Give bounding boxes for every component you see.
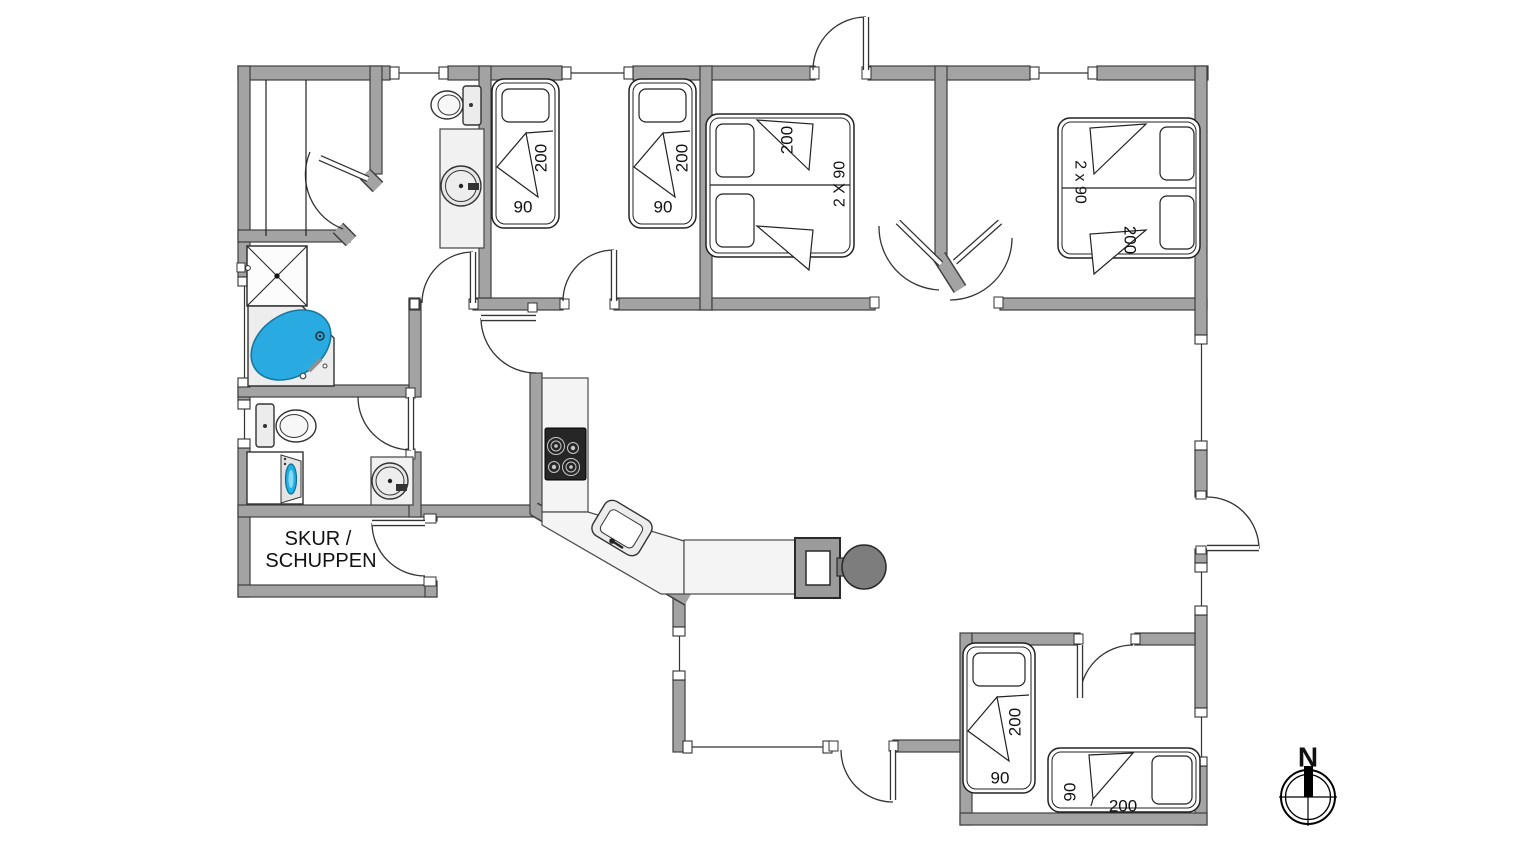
washing-machine <box>247 452 303 504</box>
kitchen-counter-horizontal <box>684 540 795 594</box>
window-cap <box>1195 563 1207 572</box>
label-bed2-width: 90 <box>654 198 673 217</box>
door-jamb <box>994 297 1003 308</box>
door-jamb <box>889 741 898 751</box>
washing-machine-part <box>289 470 294 488</box>
cooktop-part <box>569 465 573 469</box>
door-jamb <box>410 299 419 309</box>
wall-north-a <box>238 66 390 80</box>
wall-north-c <box>633 66 815 80</box>
wood-stove-part <box>806 551 830 585</box>
label-bed3-length: 200 <box>778 126 797 154</box>
shower-part <box>246 266 251 271</box>
window-cap <box>1195 708 1207 717</box>
window-cap <box>673 671 685 680</box>
wall-north-d <box>868 66 1030 80</box>
door-jamb <box>528 303 537 312</box>
corner-bathtub-part <box>319 335 322 338</box>
shower <box>237 246 307 306</box>
window-north-2 <box>562 67 633 79</box>
wall-brbed-south <box>960 813 1207 825</box>
window-north-3 <box>1030 67 1097 79</box>
cooktop-part <box>571 446 575 450</box>
wall-bed3-south <box>712 298 875 310</box>
door-jamb <box>406 388 415 398</box>
window-cap <box>238 400 250 409</box>
window-cap <box>673 627 685 636</box>
door-jamb <box>560 299 569 309</box>
door-jamb <box>870 297 879 308</box>
label-bed3-width: 2 X 90 <box>832 161 849 207</box>
shower-part <box>237 263 245 272</box>
bed-double-room3-part <box>716 124 754 177</box>
washing-machine-part <box>284 458 286 460</box>
window-east-living-1 <box>1195 335 1207 450</box>
bed-double-room4-part <box>1160 196 1194 249</box>
label-bed4-width: 2 x 90 <box>1072 160 1089 204</box>
window-cap <box>1195 606 1207 615</box>
wood-stove-part <box>842 545 886 589</box>
floorplan-canvas: 20090200902002 X 902 x 902002009090200SK… <box>0 0 1536 864</box>
door-jamb <box>1074 634 1083 644</box>
window-cap <box>1195 441 1207 450</box>
vanity-laundry-part <box>388 479 392 483</box>
window-cap <box>562 67 571 79</box>
label-shed-label-line1: SKUR / <box>285 528 352 550</box>
wall-north-b <box>448 66 562 80</box>
window-cap <box>390 67 399 79</box>
wall-east-d <box>1195 615 1207 708</box>
wall-shed-south <box>238 585 437 597</box>
label-bed1-length: 200 <box>532 144 551 172</box>
wall-laundry-north <box>238 385 409 397</box>
window-cap <box>238 439 250 448</box>
cooktop-part <box>554 444 558 448</box>
bed-double-room3-part <box>716 194 754 247</box>
toilet-wc-part <box>469 103 473 107</box>
label-compass-north: N <box>1298 742 1318 773</box>
window-west-laundry <box>238 400 250 448</box>
label-bed5-length: 200 <box>1006 708 1025 736</box>
wall-bath-north <box>238 230 350 242</box>
toilet-laundry-part <box>263 424 267 428</box>
wall-south-living <box>893 740 960 752</box>
door-jamb <box>1196 491 1206 499</box>
window-cap <box>1030 67 1039 79</box>
bed-single-2-part <box>639 89 686 122</box>
floorplan-page: 20090200902002 X 902 x 902002009090200SK… <box>0 0 1536 864</box>
washing-machine-part <box>284 463 286 465</box>
door-jamb <box>1131 634 1140 644</box>
shower-part <box>274 273 279 278</box>
wall-bed3-bed4 <box>935 66 947 258</box>
window-east-living-2 <box>1195 563 1207 615</box>
vanity-wc <box>440 129 484 248</box>
bed-single-br-vertical-part <box>973 653 1025 686</box>
vanity-laundry-part <box>396 484 407 491</box>
wall-hall-west-a <box>409 300 421 397</box>
wall-east-b <box>1195 450 1207 497</box>
corner-bathtub-part <box>323 364 327 368</box>
toilet-laundry-part <box>280 415 308 438</box>
door-jamb <box>810 67 819 79</box>
label-shed-label-line2: SCHUPPEN <box>265 550 376 572</box>
window-south-living <box>683 741 832 753</box>
door-jamb <box>424 577 436 586</box>
wall-brbed-north-b <box>1135 633 1195 645</box>
window-cap <box>683 741 692 753</box>
door-jamb <box>424 514 436 523</box>
cooktop <box>545 428 586 480</box>
wall-rooms-south-b <box>473 298 563 310</box>
window-cap <box>439 67 448 79</box>
wall-bed4-south <box>1000 298 1207 310</box>
wall-north-e <box>1097 66 1208 80</box>
label-bed1-width: 90 <box>514 198 533 217</box>
wall-kitchen-west <box>530 373 542 514</box>
bed-single-br-horizontal-part <box>1152 756 1192 804</box>
label-bed2-length: 200 <box>673 144 692 172</box>
window-cap <box>1088 67 1097 79</box>
toilet-wc-part <box>438 95 460 115</box>
window-north-1 <box>390 67 448 79</box>
label-bed6-length: 200 <box>1109 797 1137 816</box>
kitchen-counter-horizontal-part <box>684 540 795 594</box>
label-bed4-length: 200 <box>1121 226 1140 254</box>
label-bed5-width: 90 <box>991 769 1010 788</box>
bed-double-room4-part <box>1160 127 1194 180</box>
door-jamb <box>1196 546 1206 554</box>
vanity-wc-part <box>468 183 479 190</box>
wall-laundry-south <box>238 505 542 517</box>
label-bed6-width: 90 <box>1061 783 1080 802</box>
vanity-wc-part <box>459 184 463 188</box>
window-cap <box>1195 335 1207 344</box>
cooktop-part <box>552 465 556 469</box>
window-cap <box>624 67 633 79</box>
door-jamb <box>829 741 838 751</box>
wall-entrance-east <box>370 66 382 174</box>
bed-single-1-part <box>502 89 549 122</box>
corner-bathtub-part <box>300 373 306 379</box>
vanity-laundry <box>371 457 413 505</box>
wall-rooms-south-c <box>614 298 712 310</box>
window-sw-vertical <box>673 627 685 680</box>
